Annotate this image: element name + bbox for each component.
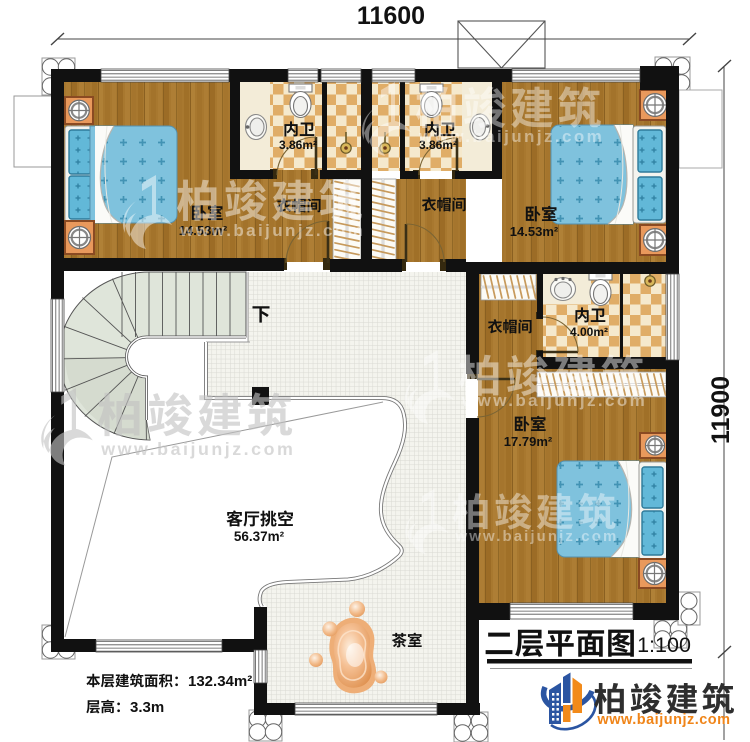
svg-text:14.53m²: 14.53m² bbox=[510, 224, 559, 239]
svg-text:1:100: 1:100 bbox=[637, 633, 691, 657]
svg-text:4.00m²: 4.00m² bbox=[570, 325, 608, 339]
svg-text:56.37m²: 56.37m² bbox=[234, 529, 285, 544]
svg-text:132.34m²: 132.34m² bbox=[188, 673, 252, 690]
svg-text:11900: 11900 bbox=[707, 376, 735, 444]
svg-text:www.baijunjz.com: www.baijunjz.com bbox=[596, 712, 730, 728]
svg-text:17.79m²: 17.79m² bbox=[504, 434, 553, 449]
svg-text:3.86m²: 3.86m² bbox=[279, 138, 317, 152]
svg-text:www.baijunjz.com: www.baijunjz.com bbox=[100, 439, 295, 459]
svg-text:3.3m: 3.3m bbox=[130, 699, 164, 716]
svg-text:www.baijunjz.com: www.baijunjz.com bbox=[461, 391, 647, 410]
svg-text:www.baijunjz.com: www.baijunjz.com bbox=[179, 221, 365, 240]
svg-text:11600: 11600 bbox=[357, 2, 425, 30]
svg-text:www.baijunjz.com: www.baijunjz.com bbox=[418, 127, 604, 146]
svg-text:www.baijunjz.com: www.baijunjz.com bbox=[455, 528, 619, 545]
